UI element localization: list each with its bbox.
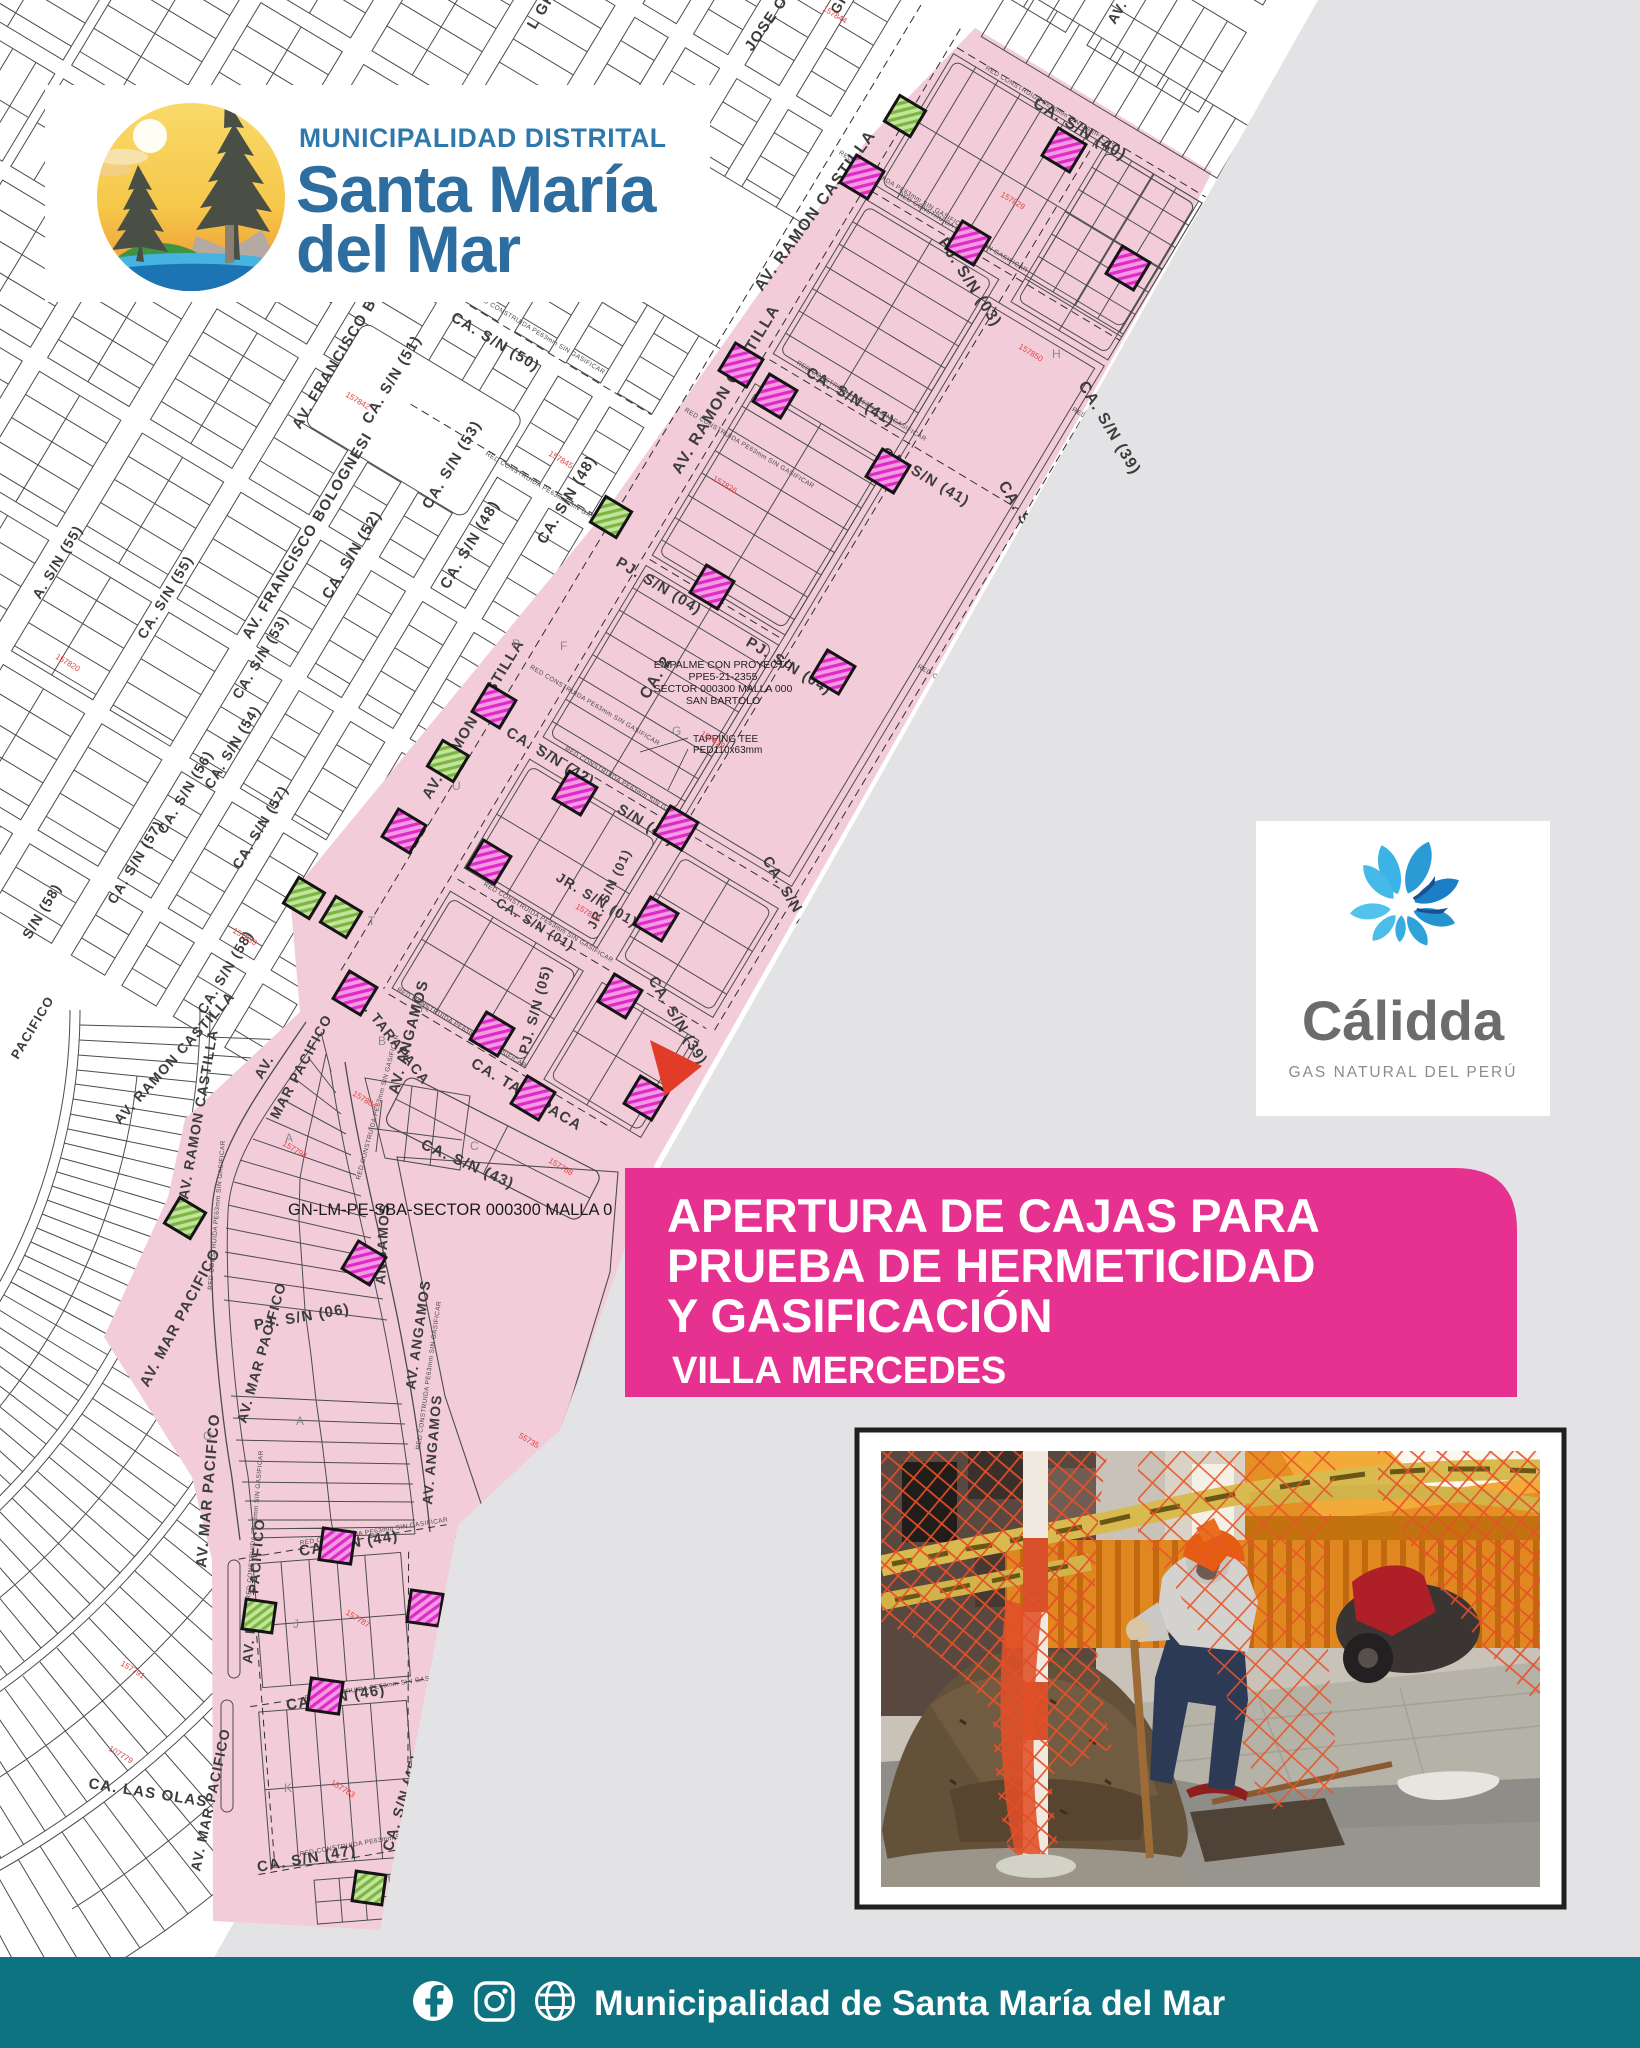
svg-text:Y GASIFICACIÓN: Y GASIFICACIÓN [667, 1289, 1053, 1342]
svg-text:O: O [203, 1429, 212, 1443]
svg-text:C: C [470, 1139, 479, 1153]
svg-text:T: T [368, 914, 376, 928]
svg-text:MUNICIPALIDAD DISTRITAL: MUNICIPALIDAD DISTRITAL [299, 123, 667, 153]
svg-text:GAS NATURAL DEL PERÚ: GAS NATURAL DEL PERÚ [1289, 1064, 1518, 1081]
svg-text:P: P [512, 637, 520, 651]
svg-text:APERTURA DE CAJAS PARA: APERTURA DE CAJAS PARA [667, 1189, 1320, 1242]
svg-text:Cálidda: Cálidda [1302, 989, 1505, 1052]
svg-text:SECTOR 000300 MALLA 000: SECTOR 000300 MALLA 000 [654, 683, 793, 695]
svg-text:VILLA MERCEDES: VILLA MERCEDES [672, 1350, 1006, 1392]
svg-text:PRUEBA DE HERMETICIDAD: PRUEBA DE HERMETICIDAD [667, 1239, 1315, 1292]
svg-text:GN-LM-PE-SBA-SECTOR 000300 MAL: GN-LM-PE-SBA-SECTOR 000300 MALLA 0 [288, 1201, 612, 1219]
svg-text:H: H [1052, 347, 1061, 361]
svg-text:A: A [296, 1414, 304, 1428]
svg-text:EMPALME CON PROYECTO: EMPALME CON PROYECTO [654, 659, 792, 671]
svg-text:del Mar: del Mar [296, 212, 520, 286]
svg-text:R: R [420, 1001, 429, 1015]
svg-text:K: K [284, 1781, 292, 1795]
svg-text:PPE5-21-2355: PPE5-21-2355 [689, 671, 758, 683]
svg-text:G: G [672, 724, 681, 738]
svg-text:F: F [560, 639, 567, 653]
svg-text:Municipalidad de Santa María d: Municipalidad de Santa María del Mar [594, 1983, 1225, 2023]
svg-text:A: A [285, 1131, 293, 1145]
svg-text:B: B [378, 1034, 386, 1048]
svg-text:SAN BARTOLO: SAN BARTOLO [686, 695, 760, 707]
svg-text:J: J [293, 1617, 299, 1631]
svg-text:PED110x63mm: PED110x63mm [693, 745, 762, 756]
